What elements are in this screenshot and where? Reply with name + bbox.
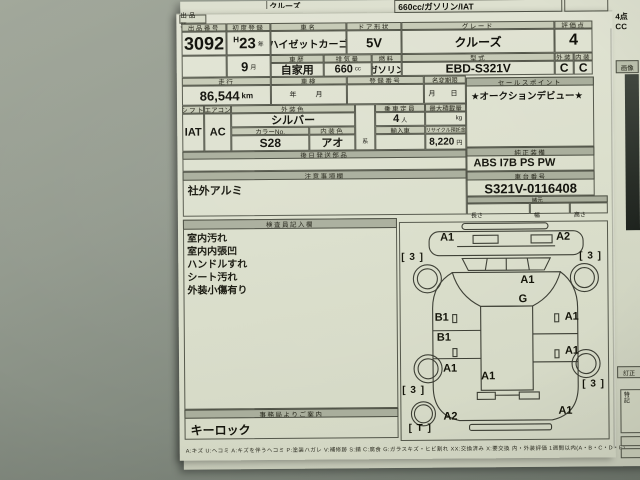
shaken-value: 年 月 [271,84,347,105]
sales-point-header: セールスポイント [466,76,594,86]
damage-mark-A1: A1 [565,346,579,357]
correction-box: 訂正 [617,366,640,378]
side-small-box-2 [621,448,640,458]
car-outline [400,221,609,440]
interior-color-suffix-cell: 系 [355,104,375,150]
specs-width-cell: 幅 [530,203,570,214]
paper-stack: クルーズ 660cc/ガソリン/IAT 4点 CC 出品票 出品番号 3092 … [0,0,640,480]
office-notice-value: キーロック [190,421,250,438]
mileage-value: 86,544 [200,88,240,103]
damage-mark-B1: B1 [435,313,449,324]
shift-value: IAT [182,114,204,152]
top-sheet-spec-box: 660cc/ガソリン/IAT [394,0,562,13]
auction-sheet-photo: クルーズ 660cc/ガソリン/IAT 4点 CC 出品票 出品番号 3092 … [0,0,640,480]
import-car-empty [375,134,425,150]
equipment-value: ABS I7B PS PW [473,157,555,170]
damage-mark-A1: A1 [565,312,579,323]
damage-mark-A1: A1 [520,275,534,286]
capacity-unit: 人 [401,114,407,123]
image-panel-label: 画像 [616,60,639,73]
color-number-value: S28 [231,135,309,152]
specs-length-label: 長さ [471,213,483,219]
sales-point-value: ★オークションデビュー★ [471,88,591,101]
equipment-header: 純正装備 [466,146,594,156]
side-note-box: 特記 [620,389,640,433]
registration-number-value [347,84,424,105]
grade-value: クルーズ [401,29,554,54]
tire-mark-3: [ 3 ] [579,251,602,261]
damage-diagram: A1A2A1GB1A1B1A1A1A1A2A1[ 3 ][ 3 ][ 3 ][ … [399,220,610,441]
side-note-label: 特記 [621,391,630,403]
top-sheet-grade-partial: クルーズ [269,1,329,8]
interior-grade-header: 内装 [574,52,593,60]
name-change-value: 月 日 [424,83,466,103]
damage-mark-A1: A1 [443,364,457,375]
damage-mark-A2: A2 [556,232,570,243]
top-sheet-score-note: 4点 CC [615,11,638,31]
first-registration-month: 9 [241,59,248,74]
office-notice-header: 事務局よりご案内 [184,408,398,419]
exterior-grade-header: 外装 [555,53,574,61]
specs-width-label: 幅 [534,213,540,219]
damage-mark-A1: A1 [440,233,454,244]
specs-height-cell: 高さ [570,202,608,213]
interior-color-value: アオ [309,134,355,150]
notes-value: 社外アルミ [188,182,243,198]
capacity-value: 4 [393,113,399,125]
damage-mark-A1: A1 [481,371,495,382]
inspector-items: 室内汚れ室内内張凹ハンドルすれシート汚れ外装小傷有り [187,231,388,298]
top-sheet-empty-box [564,0,608,12]
top-sheet-divider [266,1,267,9]
specs-height-label: 高さ [574,213,586,219]
aircon-header: エアコン [204,105,231,113]
tire-mark-3: [ 3 ] [402,386,425,396]
sales-point-box [466,76,595,147]
shift-header: シフト [182,106,204,114]
recycle-fee-value: 8,220 [429,136,454,147]
tire-mark-3: [ 3 ] [401,253,424,263]
inspector-header: 検査員記入欄 [183,218,397,230]
exterior-color-value: シルバー [231,112,355,127]
door-shape-value: 5V [346,30,401,54]
vehicle-photo-thumbnail [625,74,640,230]
displacement-unit: cc [355,66,361,72]
inspector-item: 外装小傷有り [187,283,387,298]
tire-mark-3: [ 3 ] [582,379,605,389]
year-unit: 年 [258,39,264,48]
lot-number-value: 3092 [181,31,226,55]
lot-number-empty-cell [182,55,227,77]
car-name-value: ハイゼットカーゴ [270,30,346,55]
chassis-value: S321V-0116408 [467,180,595,195]
fuel-value: ガソリン [372,62,402,76]
interior-grade-value: C [574,60,593,74]
aircon-value: AC [204,113,231,151]
damage-mark-G: G [519,294,528,305]
chassis-header: 車台番号 [467,170,595,180]
damage-mark-A1: A1 [558,406,572,417]
month-unit: 月 [250,62,256,71]
side-small-box-1 [621,436,640,446]
model-code-value: EBD-S321V [402,61,555,76]
tire-mark-T: [ T ] [409,424,432,434]
history-value: 自家用 [271,63,324,77]
first-registration-year: 23 [239,35,256,52]
fuel-header: 燃料 [372,54,402,62]
damage-mark-A2: A2 [443,412,457,423]
specs-length-cell: 長さ [467,203,530,214]
displacement-value: 660 [335,63,353,75]
max-load-value: kg [425,111,466,125]
damage-mark-B1: B1 [437,333,451,344]
sheet-title-label: 出品票 [179,15,206,24]
exterior-grade-value: C [555,61,574,75]
mileage-unit: km [241,91,253,100]
recycle-fee-unit: 円 [456,137,462,146]
score-value: 4 [554,28,592,52]
